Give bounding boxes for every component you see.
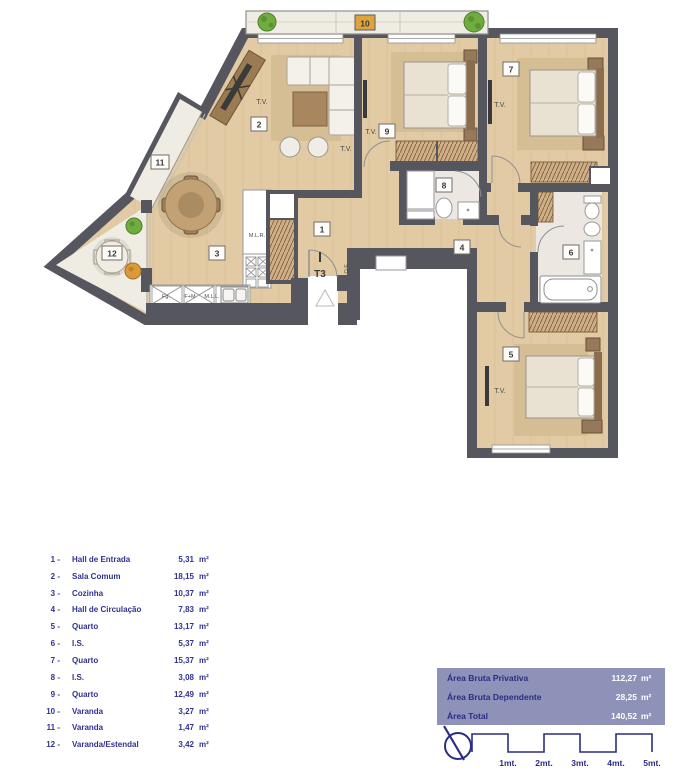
svg-text:T.V.: T.V. — [256, 99, 267, 106]
legend-item: 8 -I.S.3,08m² — [38, 669, 268, 686]
legend-item: 4 -Hall de Circulação7,83m² — [38, 602, 268, 619]
legend-item: 10 -Varanda3,27m² — [38, 703, 268, 720]
legend-item: 7 -Quarto15,37m² — [38, 652, 268, 669]
sink-icon — [584, 222, 600, 236]
room-legend: 1 -Hall de Entrada5,31m² 2 -Sala Comum18… — [38, 551, 268, 753]
legend-item: 12 -Varanda/Estendal3,42m² — [38, 736, 268, 753]
area-row: Área Bruta Privativa112,27m² — [437, 668, 665, 687]
svg-text:8: 8 — [442, 181, 447, 191]
svg-text:5: 5 — [509, 350, 514, 360]
plant-icon — [258, 13, 276, 31]
electrical-panel-label: Q.E. — [344, 262, 350, 273]
pouf — [308, 137, 328, 157]
sink-icon — [436, 198, 452, 218]
dining-table — [158, 172, 224, 238]
bathtub-icon — [540, 276, 601, 303]
floorplan-page: T.V. T.V. T.V. T.V. T.V. M.L.R. Fg. F+M … — [0, 0, 676, 771]
hall-niche — [376, 256, 406, 270]
vanity — [584, 241, 601, 274]
svg-text:T.V.: T.V. — [340, 146, 351, 153]
svg-text:M.L.L.: M.L.L. — [204, 294, 220, 300]
plant-icon — [125, 263, 141, 279]
svg-text:5mt.: 5mt. — [643, 758, 660, 768]
svg-text:1mt.: 1mt. — [499, 758, 516, 768]
plant-icon — [126, 218, 142, 234]
legend-item: 6 -I.S.5,37m² — [38, 635, 268, 652]
svg-text:T.V.: T.V. — [494, 388, 505, 395]
svg-text:3: 3 — [215, 249, 220, 259]
legend-item: 9 -Quarto12,49m² — [38, 686, 268, 703]
svg-text:7: 7 — [509, 65, 514, 75]
legend-item: 5 -Quarto13,17m² — [38, 618, 268, 635]
room-label-10: 10 — [355, 15, 375, 30]
room-label-4: 4 — [454, 240, 470, 254]
legend-item: 1 -Hall de Entrada5,31m² — [38, 551, 268, 568]
room-label-1: 1 — [314, 222, 330, 236]
svg-text:M.L.R.: M.L.R. — [249, 233, 266, 239]
svg-text:1: 1 — [320, 225, 325, 235]
svg-text:T.V.: T.V. — [494, 102, 505, 109]
room-label-11: 11 — [151, 155, 169, 169]
legend-item: 3 -Cozinha10,37m² — [38, 585, 268, 602]
svg-text:11: 11 — [156, 158, 165, 168]
shaft — [590, 167, 611, 185]
svg-text:4mt.: 4mt. — [607, 758, 624, 768]
room7-bed — [530, 58, 604, 150]
plant-icon — [464, 12, 484, 32]
pouf — [280, 137, 300, 157]
room-label-6: 6 — [563, 245, 579, 259]
room-label-7: 7 — [503, 62, 519, 76]
scale-bar: 1mt. 2mt. 3mt. 4mt. 5mt. — [470, 726, 676, 770]
room9-bed — [404, 50, 477, 141]
svg-text:2mt.: 2mt. — [535, 758, 552, 768]
svg-text:2: 2 — [257, 120, 262, 130]
svg-text:Fg.: Fg. — [162, 294, 170, 300]
svg-text:9: 9 — [385, 127, 390, 137]
area-summary-table: Área Bruta Privativa112,27m² Área Bruta … — [437, 668, 665, 725]
legend-item: 11 -Varanda1,47m² — [38, 719, 268, 736]
room-label-12: 12 — [102, 246, 122, 260]
area-row: Área Bruta Dependente28,25m² — [437, 687, 665, 706]
legend-item: 2 -Sala Comum18,15m² — [38, 568, 268, 585]
room-label-9: 9 — [379, 124, 395, 138]
floor-plan-svg: T.V. T.V. T.V. T.V. T.V. M.L.R. Fg. F+M … — [0, 0, 676, 470]
svg-text:3mt.: 3mt. — [571, 758, 588, 768]
room-label-3: 3 — [209, 246, 225, 260]
room-label-8: 8 — [436, 178, 452, 192]
svg-text:6: 6 — [569, 248, 574, 258]
svg-text:10: 10 — [360, 19, 370, 29]
svg-text:T3: T3 — [314, 269, 326, 280]
coffee-table — [293, 92, 327, 126]
svg-text:F+M: F+M — [184, 294, 196, 300]
toilet-icon — [584, 196, 601, 203]
svg-text:4: 4 — [460, 243, 465, 253]
svg-text:12: 12 — [107, 249, 117, 259]
svg-text:T.V.: T.V. — [365, 129, 376, 136]
room-label-5: 5 — [503, 347, 519, 361]
room-label-2: 2 — [251, 117, 267, 131]
floor-plan: T.V. T.V. T.V. T.V. T.V. M.L.R. Fg. F+M … — [0, 0, 676, 470]
kitchen-closet — [266, 190, 298, 284]
